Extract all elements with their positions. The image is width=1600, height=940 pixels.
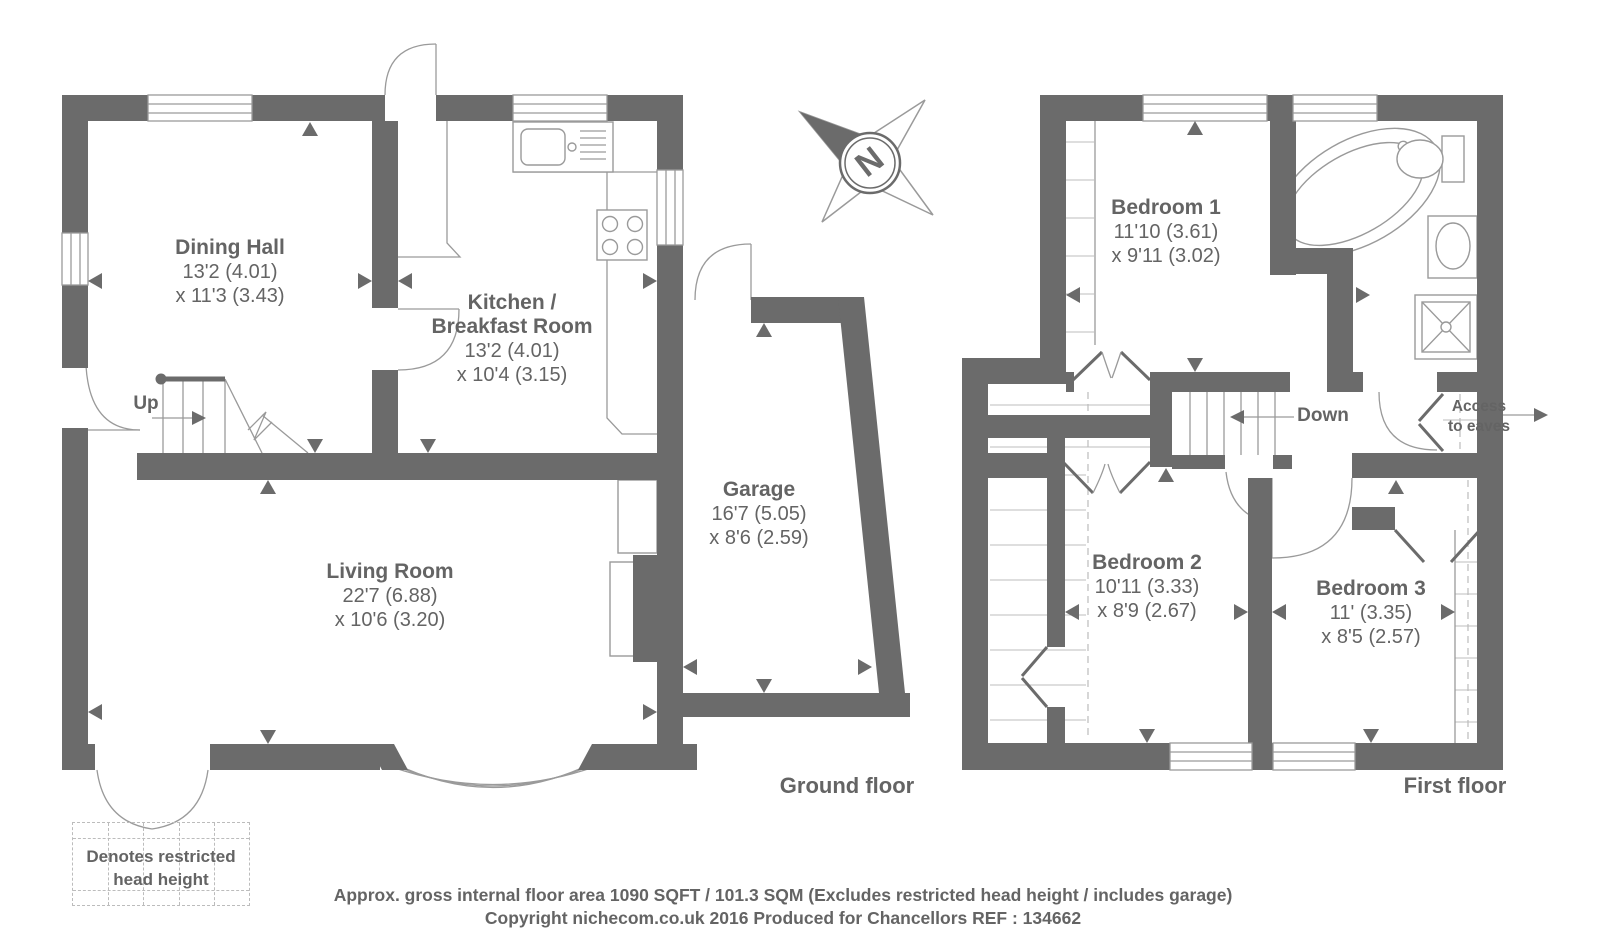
room-dim: 16'7 (5.05) [709,502,808,526]
bedroom3-closet-doors [1395,530,1480,562]
ground-floor-dimension-arrows [88,122,872,744]
bedroom2-closet-doors [1063,462,1150,493]
rear-door [385,44,436,95]
room-dim: 11'10 (3.61) [1111,220,1221,244]
ground-floor-title: Ground floor [780,773,914,799]
garage-side-door [695,244,751,300]
room-dim: x 8'9 (2.67) [1092,599,1202,623]
room-dim: x 10'4 (3.15) [431,363,592,387]
restricted-head-height-areas [990,392,1500,743]
first-floor-title: First floor [1404,773,1507,799]
room-label-bedroom3: Bedroom 3 11' (3.35) x 8'5 (2.57) [1316,577,1426,649]
bathroom-door [1379,392,1437,450]
room-dim: 11' (3.35) [1316,601,1426,625]
stairs-down [1190,392,1294,455]
bedroom1-closet-doors [1073,352,1150,380]
kitchen-sink-icon [513,122,613,172]
stairs-up-label: Up [133,393,158,415]
eaves-access-label: Access to eaves [1448,397,1510,437]
room-label-bedroom1: Bedroom 1 11'10 (3.61) x 9'11 (3.02) [1111,196,1221,268]
basin-icon [1428,216,1477,278]
footer-area-line: Approx. gross internal floor area 1090 S… [334,884,1233,907]
room-dim: x 11'3 (3.43) [175,284,285,308]
room-label-garage: Garage 16'7 (5.05) x 8'6 (2.59) [709,478,808,550]
room-name: Kitchen / [431,291,592,315]
shower-icon [1415,295,1477,359]
room-dim: x 8'5 (2.57) [1316,625,1426,649]
ground-floor-walls [62,95,910,770]
room-dim: 13'2 (4.01) [175,260,285,284]
room-label-kitchen: Kitchen / Breakfast Room 13'2 (4.01) x 1… [431,291,592,387]
room-name: Breakfast Room [431,315,592,339]
room-label-bedroom2: Bedroom 2 10'11 (3.33) x 8'9 (2.67) [1092,551,1202,623]
room-name: Bedroom 2 [1092,551,1202,575]
footer-copyright-line: Copyright nichecom.co.uk 2016 Produced f… [334,907,1233,930]
ground-floor-plan [62,44,910,829]
room-dim: x 10'6 (3.20) [326,608,453,632]
room-dim: x 9'11 (3.02) [1111,244,1221,268]
legend-text: Denotes restricted head height [86,845,235,891]
toilet-icon [1397,136,1464,182]
floorplan-drawing [0,0,1600,940]
room-dim: 10'11 (3.33) [1092,575,1202,599]
room-name: Garage [709,478,808,502]
room-name: Bedroom 1 [1111,196,1221,220]
room-dim: x 8'6 (2.59) [709,526,808,550]
stairs-down-label: Down [1297,405,1349,427]
bedroom1-wardrobe [1066,121,1095,345]
room-label-living: Living Room 22'7 (6.88) x 10'6 (3.20) [326,560,453,632]
patio-doors [97,770,208,829]
room-name: Living Room [326,560,453,584]
bay-window [368,744,618,788]
room-name: Bedroom 3 [1316,577,1426,601]
footer-text: Approx. gross internal floor area 1090 S… [334,884,1233,930]
room-dim: 22'7 (6.88) [326,584,453,608]
room-dim: 13'2 (4.01) [431,339,592,363]
hob-icon [597,210,647,260]
bedroom2-eaves-doors [1022,647,1047,707]
room-name: Dining Hall [175,236,285,260]
stairs-up [152,374,308,454]
front-door [62,366,140,430]
floorplan-canvas: Dining Hall 13'2 (4.01) x 11'3 (3.43) Ki… [0,0,1600,940]
room-label-dining: Dining Hall 13'2 (4.01) x 11'3 (3.43) [175,236,285,308]
bedroom3-door [1272,478,1352,558]
fireplace [610,480,657,662]
